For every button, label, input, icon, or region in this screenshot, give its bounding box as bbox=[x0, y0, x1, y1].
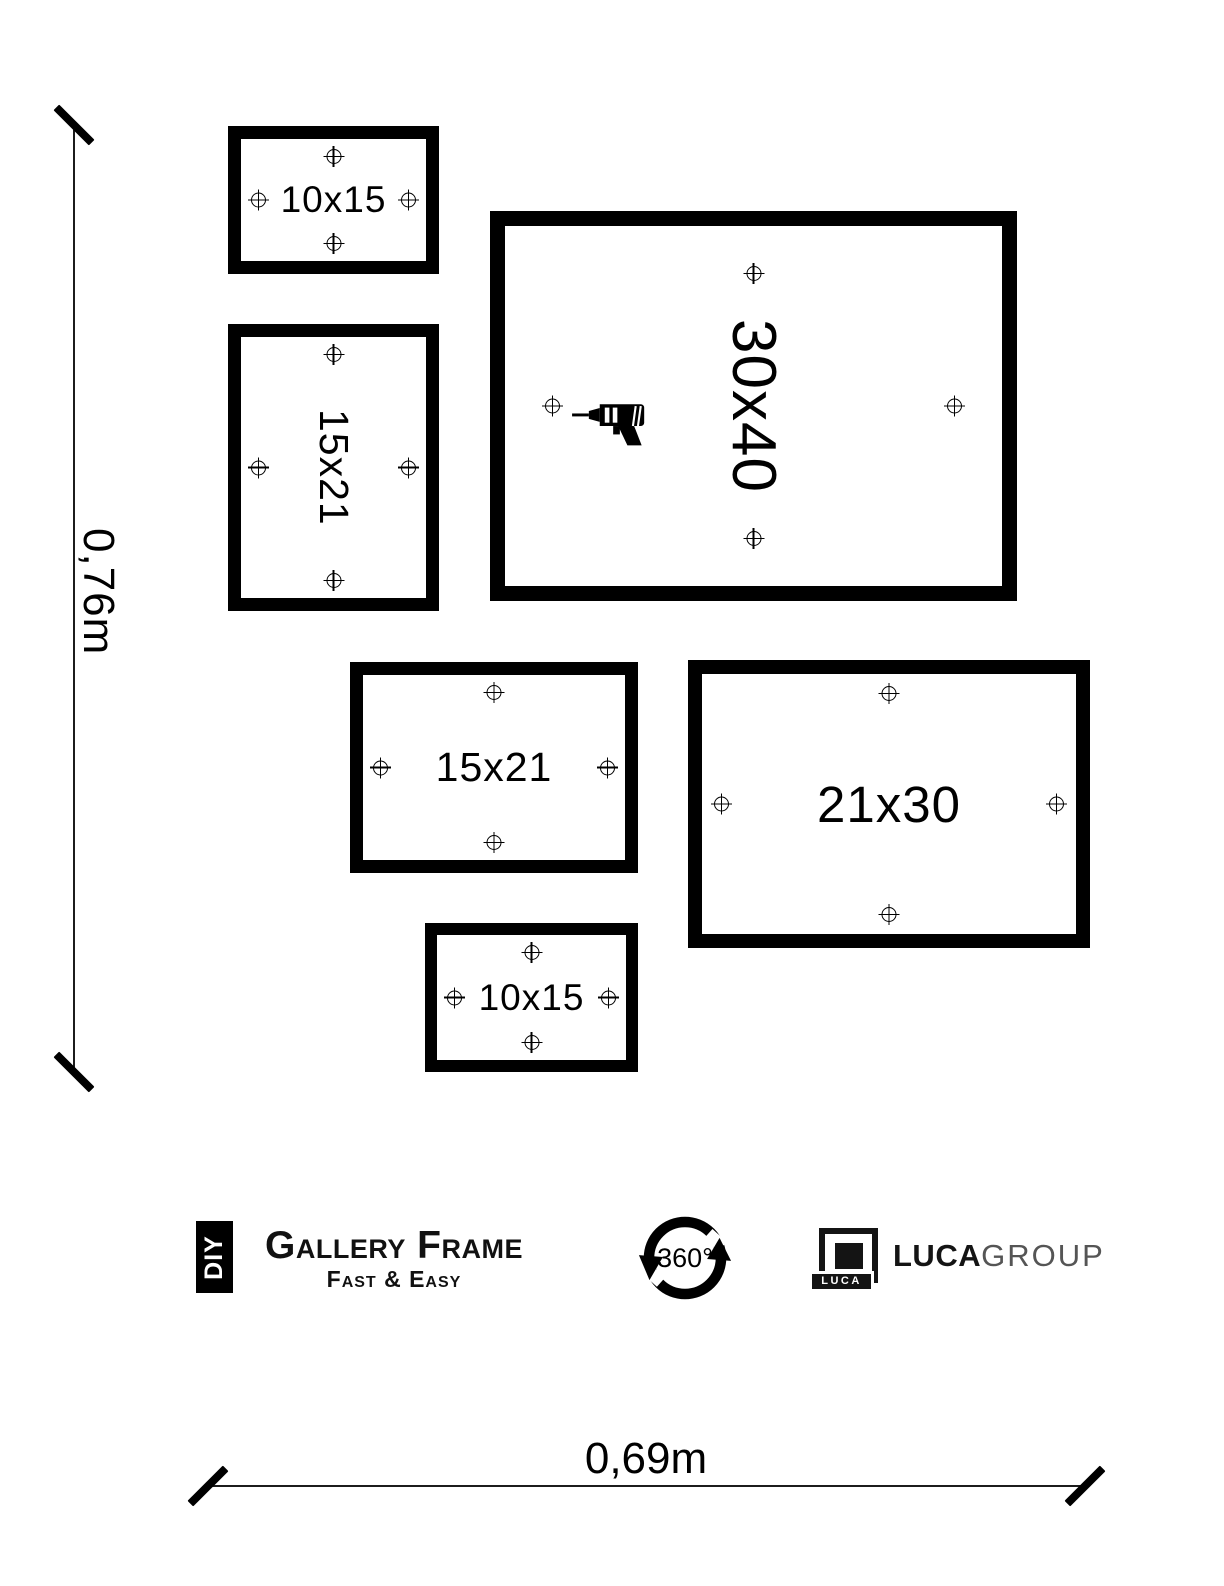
crosshair-marker-icon bbox=[401, 193, 416, 208]
crosshair-marker-icon bbox=[600, 760, 615, 775]
crosshair-marker-icon bbox=[524, 1035, 539, 1050]
rotation-360-icon: 360° bbox=[637, 1210, 733, 1306]
crosshair-marker-icon bbox=[326, 149, 341, 164]
drill-icon bbox=[572, 390, 656, 447]
crosshair-marker-icon bbox=[326, 573, 341, 588]
crosshair-marker-icon bbox=[401, 460, 416, 475]
crosshair-marker-icon bbox=[714, 797, 729, 812]
crosshair-marker-icon bbox=[487, 835, 502, 850]
rotation-360-label: 360° bbox=[637, 1210, 733, 1306]
crosshair-marker-icon bbox=[746, 531, 761, 546]
crosshair-marker-icon bbox=[601, 990, 616, 1005]
frame-15x21-middle: 15x21 bbox=[350, 662, 638, 873]
height-dimension-label: 0,76m bbox=[76, 528, 120, 655]
frame-size-label: 10x15 bbox=[281, 179, 387, 221]
frame-10x15-top: 10x15 bbox=[228, 126, 439, 274]
crosshair-marker-icon bbox=[373, 760, 388, 775]
crosshair-marker-icon bbox=[882, 686, 897, 701]
luca-wordmark-bold: LUCA bbox=[893, 1240, 981, 1271]
brand-subtitle: Fast & Easy bbox=[243, 1268, 545, 1291]
frame-30x40: 30x40 bbox=[490, 211, 1017, 601]
brand-title: Gallery Frame bbox=[243, 1226, 545, 1265]
luca-group-wordmark: LUCA GROUP bbox=[893, 1240, 1105, 1271]
crosshair-marker-icon bbox=[251, 460, 266, 475]
crosshair-marker-icon bbox=[251, 193, 266, 208]
crosshair-marker-icon bbox=[746, 266, 761, 281]
luca-logo-badge: LUCA bbox=[809, 1271, 874, 1292]
crosshair-marker-icon bbox=[447, 990, 462, 1005]
diy-logo-text: DIY bbox=[200, 1235, 229, 1280]
frame-21x30: 21x30 bbox=[688, 660, 1090, 948]
frame-10x15-bottom: 10x15 bbox=[425, 923, 638, 1072]
frame-size-label: 15x21 bbox=[310, 409, 357, 526]
crosshair-marker-icon bbox=[326, 236, 341, 251]
luca-wordmark-light: GROUP bbox=[981, 1240, 1105, 1271]
gallery-frame-logo: Gallery Frame Fast & Easy bbox=[243, 1226, 545, 1291]
crosshair-marker-icon bbox=[1049, 797, 1064, 812]
frame-size-label: 30x40 bbox=[718, 319, 789, 493]
frame-size-label: 21x30 bbox=[817, 775, 961, 834]
width-dimension-label: 0,69m bbox=[556, 1437, 736, 1481]
gallery-frame-layout-diagram: 0,76m 0,69m 10x15 15x21 30x40 bbox=[0, 0, 1224, 1586]
frame-size-label: 10x15 bbox=[479, 977, 585, 1019]
crosshair-marker-icon bbox=[487, 685, 502, 700]
frame-size-label: 15x21 bbox=[436, 744, 553, 791]
crosshair-marker-icon bbox=[882, 907, 897, 922]
crosshair-marker-icon bbox=[326, 347, 341, 362]
crosshair-marker-icon bbox=[524, 945, 539, 960]
diy-logo-badge: DIY bbox=[196, 1221, 233, 1293]
crosshair-marker-icon bbox=[947, 399, 962, 414]
luca-logo-inner-square bbox=[835, 1243, 863, 1269]
horizontal-dimension-line bbox=[208, 1485, 1085, 1487]
frame-15x21-left: 15x21 bbox=[228, 324, 439, 611]
crosshair-marker-icon bbox=[545, 399, 560, 414]
